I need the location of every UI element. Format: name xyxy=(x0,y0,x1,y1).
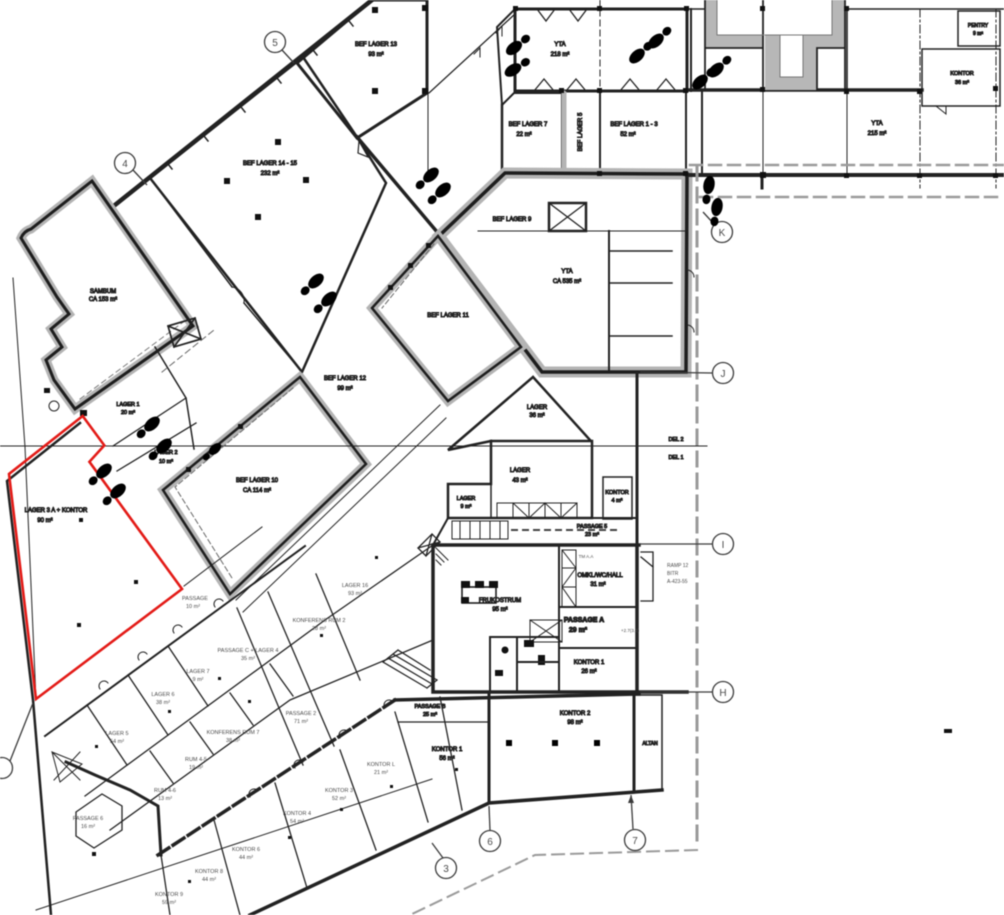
svg-text:59 m²: 59 m² xyxy=(162,900,176,906)
svg-text:BEF LAGER 7: BEF LAGER 7 xyxy=(509,122,548,128)
svg-text:26 m²: 26 m² xyxy=(581,669,596,675)
svg-text:36 m²: 36 m² xyxy=(529,413,544,419)
svg-text:KONTOR 2: KONTOR 2 xyxy=(560,711,591,717)
svg-text:56 m²: 56 m² xyxy=(439,756,454,762)
svg-text:215 m²: 215 m² xyxy=(868,131,887,137)
svg-text:25 m²: 25 m² xyxy=(423,712,437,718)
svg-text:PASSAGE: PASSAGE xyxy=(182,596,208,602)
svg-text:20 m²: 20 m² xyxy=(121,410,135,416)
svg-text:52 m²: 52 m² xyxy=(332,796,346,802)
svg-text:CA 153 m²: CA 153 m² xyxy=(89,297,117,303)
svg-text:LAGER 5: LAGER 5 xyxy=(105,731,128,737)
svg-text:10 m²: 10 m² xyxy=(159,459,173,465)
svg-text:RAMP 12: RAMP 12 xyxy=(667,563,689,569)
svg-text:BEF LAGER 9: BEF LAGER 9 xyxy=(493,217,532,223)
svg-text:43 m²: 43 m² xyxy=(512,478,527,484)
svg-text:LAGER 3 A + KONTOR: LAGER 3 A + KONTOR xyxy=(25,508,88,514)
svg-text:BEF LAGER 14 - 15: BEF LAGER 14 - 15 xyxy=(243,161,298,167)
svg-text:CA 114 m²: CA 114 m² xyxy=(243,488,271,494)
svg-text:I: I xyxy=(722,540,725,551)
svg-text:4: 4 xyxy=(122,159,128,170)
svg-text:232 m²: 232 m² xyxy=(261,171,280,177)
svg-text:BEF LAGER 5: BEF LAGER 5 xyxy=(578,112,584,151)
svg-text:35 m²: 35 m² xyxy=(241,656,255,662)
svg-text:5: 5 xyxy=(272,38,278,49)
svg-text:38 m²: 38 m² xyxy=(226,738,240,744)
svg-text:BEF LAGER 12: BEF LAGER 12 xyxy=(324,376,367,382)
svg-text:BEF LAGER 11: BEF LAGER 11 xyxy=(427,313,469,319)
svg-text:93 m²: 93 m² xyxy=(368,52,383,58)
svg-text:90 m²: 90 m² xyxy=(37,518,52,524)
svg-text:6: 6 xyxy=(487,837,493,848)
svg-text:KONTOR 9: KONTOR 9 xyxy=(155,892,183,898)
svg-text:PASSAGE B: PASSAGE B xyxy=(414,704,445,710)
svg-text:28 m²: 28 m² xyxy=(312,626,326,632)
svg-text:218 m²: 218 m² xyxy=(551,52,570,58)
svg-text:98 m²: 98 m² xyxy=(567,720,582,726)
svg-text:KONTOR: KONTOR xyxy=(605,490,628,496)
svg-text:9 m²: 9 m² xyxy=(193,677,204,683)
svg-text:38 m²: 38 m² xyxy=(156,700,170,706)
svg-text:LAGER 16: LAGER 16 xyxy=(342,583,368,589)
svg-text:23 m²: 23 m² xyxy=(585,532,599,538)
svg-text:54 m²: 54 m² xyxy=(110,739,124,745)
svg-text:K: K xyxy=(719,228,726,239)
svg-text:KONTOR 6: KONTOR 6 xyxy=(232,847,260,853)
svg-text:A-423-55: A-423-55 xyxy=(667,579,688,585)
svg-text:KONFERENS RUM 7: KONFERENS RUM 7 xyxy=(207,730,260,736)
svg-text:13 m²: 13 m² xyxy=(158,796,172,802)
svg-text:9 m²: 9 m² xyxy=(461,504,472,510)
svg-text:BEF LAGER 13: BEF LAGER 13 xyxy=(355,42,398,48)
svg-text:16 m²: 16 m² xyxy=(81,824,95,830)
svg-text:H: H xyxy=(719,688,726,699)
svg-text:RUM 4-5: RUM 4-5 xyxy=(185,757,207,763)
svg-text:ALTAN: ALTAN xyxy=(642,741,658,747)
svg-text:FRUKOSTRUM: FRUKOSTRUM xyxy=(479,598,521,604)
svg-text:21 m²: 21 m² xyxy=(374,770,388,776)
svg-text:CA 535 m²: CA 535 m² xyxy=(553,279,581,285)
svg-text:KONFERENS RUM 2: KONFERENS RUM 2 xyxy=(293,618,346,624)
svg-text:TM A.A: TM A.A xyxy=(579,554,594,559)
svg-text:10 m²: 10 m² xyxy=(186,604,200,610)
svg-text:DEL 2: DEL 2 xyxy=(668,437,683,443)
svg-text:KONTOR 8: KONTOR 8 xyxy=(195,869,223,875)
svg-text:KONTOR: KONTOR xyxy=(950,71,973,77)
svg-text:4 m²: 4 m² xyxy=(612,498,623,504)
svg-text:RUM 4-6: RUM 4-6 xyxy=(154,788,176,794)
svg-text:YTA: YTA xyxy=(561,269,572,275)
svg-text:95 m²: 95 m² xyxy=(492,607,507,613)
svg-text:KONTOR 3: KONTOR 3 xyxy=(325,788,353,794)
svg-text:LAGER 1: LAGER 1 xyxy=(116,402,139,408)
svg-text:44 m²: 44 m² xyxy=(239,855,253,861)
svg-text:99 m²: 99 m² xyxy=(337,386,352,392)
svg-text:YTA: YTA xyxy=(554,42,565,48)
svg-text:PASSAGE A: PASSAGE A xyxy=(564,617,604,624)
svg-text:71 m²: 71 m² xyxy=(294,719,308,725)
svg-text:OMKL/WC/HALL: OMKL/WC/HALL xyxy=(577,573,623,579)
svg-text:LAGER: LAGER xyxy=(527,405,548,411)
svg-text:29 m²: 29 m² xyxy=(569,627,588,634)
svg-text:DEL 1: DEL 1 xyxy=(668,455,683,461)
svg-text:LAGER 7: LAGER 7 xyxy=(186,669,209,675)
svg-text:3: 3 xyxy=(443,864,449,875)
svg-text:KONTOR L: KONTOR L xyxy=(367,762,395,768)
svg-text:KONTOR 1: KONTOR 1 xyxy=(432,747,463,753)
svg-text:93 m²: 93 m² xyxy=(348,591,362,597)
svg-text:52 m²: 52 m² xyxy=(620,132,635,138)
svg-text:BEF LAGER 10: BEF LAGER 10 xyxy=(236,478,279,484)
svg-text:KONTOR 4: KONTOR 4 xyxy=(283,811,311,817)
svg-text:SAMBUM: SAMBUM xyxy=(90,289,116,295)
svg-text:PASSAGE 2: PASSAGE 2 xyxy=(286,711,316,717)
svg-text:LAGER: LAGER xyxy=(457,496,476,502)
svg-text:31 m²: 31 m² xyxy=(590,582,605,588)
svg-text:BEF LAGER 1 - 3: BEF LAGER 1 - 3 xyxy=(610,122,658,128)
svg-text:7: 7 xyxy=(632,836,638,847)
svg-text:+2.7(3.0): +2.7(3.0) xyxy=(621,628,640,633)
svg-text:BITR: BITR xyxy=(667,571,679,577)
svg-text:J: J xyxy=(721,369,726,380)
svg-text:PASSAGE C + LAGER 4: PASSAGE C + LAGER 4 xyxy=(218,648,279,654)
svg-text:54 m²: 54 m² xyxy=(290,819,304,825)
svg-text:22 m²: 22 m² xyxy=(516,132,531,138)
svg-text:44 m²: 44 m² xyxy=(202,877,216,883)
svg-text:LAGER 6: LAGER 6 xyxy=(151,692,174,698)
svg-text:KONTOR 1: KONTOR 1 xyxy=(574,660,605,666)
svg-text:36 m²: 36 m² xyxy=(955,80,969,86)
svg-text:YTA: YTA xyxy=(871,121,882,127)
svg-text:LAGER: LAGER xyxy=(510,468,531,474)
svg-text:9 m²: 9 m² xyxy=(973,31,983,37)
svg-text:19 m²: 19 m² xyxy=(189,765,203,771)
svg-text:PENTRY: PENTRY xyxy=(968,23,989,29)
svg-text:PASSAGE 6: PASSAGE 6 xyxy=(73,816,103,822)
